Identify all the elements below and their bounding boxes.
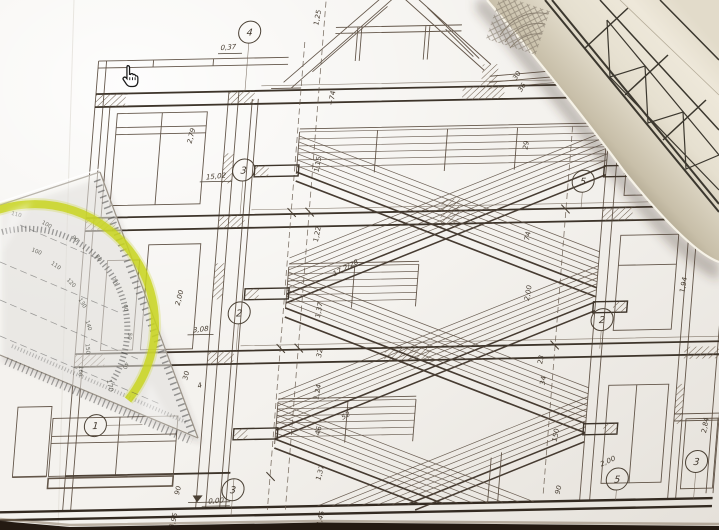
circle-label: 5 (580, 177, 587, 188)
dim-label: 0,00 (208, 495, 224, 505)
circle-label: 4 (246, 28, 253, 39)
circle-label: 3 (693, 457, 700, 468)
circle-label: 3 (230, 485, 237, 496)
dim-label: 0,37 (220, 42, 236, 52)
circle-label: 1 (92, 421, 99, 432)
photo-canvas: 4 3 2 1 3 5 2 5 3 0,37 1,25 2,79 15,02 1… (0, 0, 719, 530)
dim-label: 74 (522, 231, 533, 241)
degree-label: 60 (122, 304, 129, 312)
circle-label: 2 (599, 315, 606, 326)
circle-label: 2 (236, 308, 243, 319)
degree-label: 50 (125, 332, 132, 340)
circle-label: 3 (240, 165, 247, 176)
degree-label: 160 (76, 366, 83, 378)
dim-label: 3,08 (193, 324, 209, 335)
dim-label: 32 (314, 348, 325, 358)
dim-label: 34 (538, 376, 549, 386)
photo-blueprint-scene: 4 3 2 1 3 5 2 5 3 0,37 1,25 2,79 15,02 1… (0, 0, 719, 530)
degree-label: 150 (83, 343, 90, 355)
circle-label: 5 (614, 474, 621, 485)
dim-label: 29 (520, 140, 531, 150)
dim-label: 23 (535, 355, 546, 365)
